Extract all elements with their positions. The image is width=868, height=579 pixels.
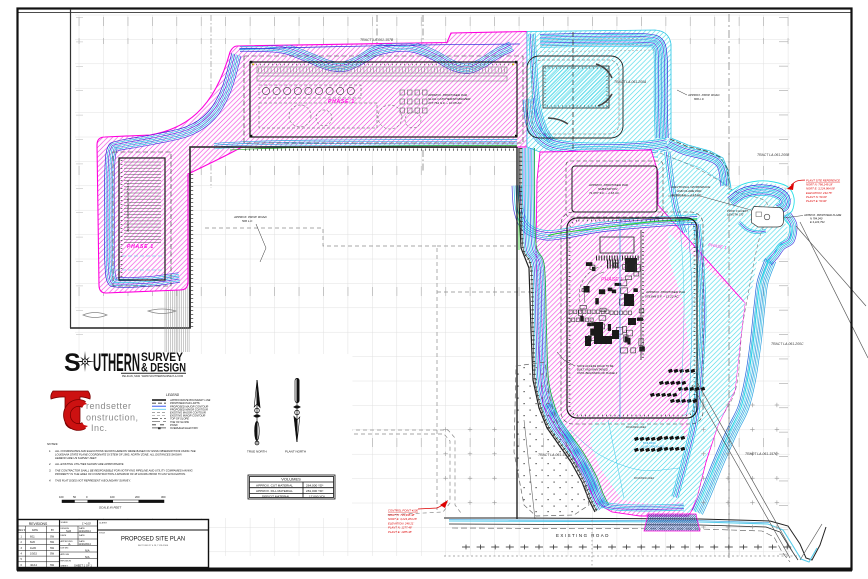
svg-text:S: S: [64, 349, 81, 377]
svg-text:11/20/2014: 11/20/2014: [79, 543, 92, 546]
svg-text:TRUE NORTH: TRUE NORTH: [247, 450, 267, 454]
svg-text:TRACT LA-061-200C: TRACT LA-061-200C: [771, 342, 804, 346]
svg-text:4.: 4.: [49, 478, 51, 482]
svg-text:3.: 3.: [49, 469, 51, 473]
svg-text:HEREON ARE US SURVEY FEET.: HEREON ARE US SURVEY FEET.: [55, 456, 97, 460]
svg-text:PLANT E: 1385.48': PLANT E: 1385.48': [388, 530, 412, 534]
svg-text:1.: 1.: [49, 449, 51, 453]
svg-text:575,648 S.F. ~ 13.22 AC.: 575,648 S.F. ~ 13.22 AC.: [645, 295, 680, 299]
svg-text:437,761 S.F. ~ 10.05 AC.: 437,761 S.F. ~ 10.05 AC.: [428, 101, 463, 105]
svg-text:& DESIGN: & DESIGN: [141, 363, 186, 375]
svg-text:100: 100: [59, 495, 64, 499]
svg-text:PROPOSED SITE PLAN: PROPOSED SITE PLAN: [121, 536, 185, 543]
svg-text:SECTIONS 27 & 28, T12S-R10E: SECTIONS 27 & 28, T12S-R10E: [138, 545, 169, 547]
svg-text:REV #: REV #: [19, 530, 26, 532]
svg-text:BUILT AND MAINTAINED: BUILT AND MAINTAINED: [577, 368, 608, 372]
svg-text:REVISIONS: REVISIONS: [29, 522, 48, 526]
svg-text:1"=100': 1"=100': [82, 522, 92, 526]
svg-text:SW: SW: [50, 535, 55, 538]
svg-text:6/11: 6/11: [30, 535, 35, 538]
svg-text:UNTIL BEGINNING OF PHASE 2: UNTIL BEGINNING OF PHASE 2: [577, 371, 618, 375]
svg-text:PHASE 1: PHASE 1: [328, 99, 355, 105]
svg-text:BUILDING: BUILDING: [643, 441, 656, 445]
svg-text:VOLUMES: VOLUMES: [281, 477, 301, 482]
svg-text:PLANT E: 50.00': PLANT E: 50.00': [806, 199, 827, 203]
svg-text:281,000 YD³: 281,000 YD³: [306, 489, 323, 493]
svg-text:TRACT LA-061-200B: TRACT LA-061-200B: [757, 153, 790, 157]
svg-text:N/A: N/A: [85, 548, 90, 552]
svg-text:200: 200: [135, 495, 140, 499]
svg-text:DATE: DATE: [61, 534, 67, 537]
svg-text:onstruction,: onstruction,: [86, 413, 139, 423]
svg-text:DW MG: DW MG: [61, 547, 69, 549]
svg-text:LENGTH 170': LENGTH 170': [727, 213, 744, 217]
svg-text:DATE: DATE: [32, 529, 38, 532]
svg-text:TRACT LA-061-200A: TRACT LA-061-200A: [614, 80, 647, 84]
svg-text:THE CONTRACTOR SHALL BE RESPON: THE CONTRACTOR SHALL BE RESPONSIBLE FOR …: [55, 469, 193, 473]
svg-text:EXISTING ROAD: EXISTING ROAD: [556, 533, 610, 538]
svg-text:300: 300: [161, 495, 166, 499]
svg-text:N/A: N/A: [85, 555, 90, 559]
svg-text:ALL COORDINATES AND ELEVATIONS: ALL COORDINATES AND ELEVATIONS SHOWN HER…: [54, 449, 196, 453]
svg-text:OVERHEAD ELECTRIC: OVERHEAD ELECTRIC: [170, 426, 198, 430]
svg-text:/21/14: /21/14: [30, 564, 38, 567]
svg-text:71,057 S.F. ~ 1.63 AC.: 71,057 S.F. ~ 1.63 AC.: [589, 191, 620, 195]
svg-text:NOTE ACCESS ROAD TO BE: NOTE ACCESS ROAD TO BE: [577, 364, 614, 368]
svg-text:TITLE: TITLE: [99, 533, 105, 535]
svg-text:1/5/15: 1/5/15: [30, 553, 38, 556]
svg-text:17,000 YD³: 17,000 YD³: [309, 495, 325, 499]
svg-text:TRACT LA-061-157B: TRACT LA-061-157B: [360, 38, 394, 42]
svg-text:SHEET 1 OF 1: SHEET 1 OF 1: [74, 564, 92, 568]
svg-text:2.: 2.: [48, 462, 51, 466]
svg-text:11/20: 11/20: [30, 547, 37, 550]
svg-text:APPROX. PROPOSED PAD: APPROX. PROPOSED PAD: [645, 290, 686, 294]
svg-text:REVISION: REVISION: [61, 560, 72, 562]
svg-text:ALL EXISTING UTILITIES SHOWN A: ALL EXISTING UTILITIES SHOWN ARE APPROXI…: [54, 462, 124, 466]
svg-text:THIS PLAT DOES NOT REPRESENT A: THIS PLAT DOES NOT REPRESENT A BOUNDARY …: [55, 478, 131, 482]
svg-text:TRACT LA-061-157A: TRACT LA-061-157A: [538, 453, 571, 457]
svg-text:PROP. CULVERT: PROP. CULVERT: [727, 209, 748, 213]
svg-text:100: 100: [110, 495, 115, 499]
svg-text:LEGEND: LEGEND: [166, 393, 180, 397]
svg-text:BY: BY: [51, 530, 55, 532]
svg-text:DEFICIT MATERIAL: DEFICIT MATERIAL: [262, 495, 290, 499]
svg-text:SLAB GRADE=250: SLAB GRADE=250: [641, 445, 665, 449]
svg-text:Inc.: Inc.: [91, 423, 108, 433]
svg-text:ROUNDED AREA: ROUNDED AREA: [626, 426, 646, 429]
svg-text:PROPERTY IN THE AREA OF CONSTR: PROPERTY IN THE AREA OF CONSTRUCTION A M…: [55, 472, 186, 476]
svg-text:PLANT NORTH: PLANT NORTH: [285, 450, 306, 454]
svg-text:N 784,040: N 784,040: [810, 217, 823, 221]
svg-text:rendsetter: rendsetter: [86, 401, 132, 411]
svg-text:NOTES:: NOTES:: [47, 442, 58, 446]
svg-text:APPROX. CUT MATERIAL: APPROX. CUT MATERIAL: [256, 483, 293, 487]
svg-text:APD MG: APD MG: [61, 553, 70, 556]
svg-text:SLR: SLR: [66, 529, 71, 533]
svg-text:SW: SW: [50, 547, 55, 550]
svg-text:94,590 S.F. ~ 2.17 AC.: 94,590 S.F. ~ 2.17 AC.: [671, 193, 702, 197]
svg-text:CLIENT: CLIENT: [99, 523, 107, 525]
svg-text:LOUISIANA STATE PLANE COORDINA: LOUISIANA STATE PLANE COORDINATE SYSTEM …: [55, 452, 182, 456]
svg-text:SCALE IN FEET: SCALE IN FEET: [99, 506, 122, 510]
svg-text:APPROX. FILL MATERIAL: APPROX. FILL MATERIAL: [256, 489, 293, 493]
svg-text:APPROX. PROPOSED PAD 437,761 S: APPROX. PROPOSED PAD 437,761 S.F.: [126, 180, 130, 233]
svg-text:ROUNDED AREA: ROUNDED AREA: [634, 477, 654, 480]
svg-text:TRACT LA-061-157C: TRACT LA-061-157C: [745, 452, 778, 456]
svg-text:PELICAN, SIGN WWW.SOUTHERNSUR: PELICAN, SIGN WWW.SOUTHERNSURVEYLA.COM: [122, 375, 183, 378]
svg-text:SW: SW: [50, 553, 55, 556]
svg-text:APPROVED: APPROVED: [61, 540, 74, 543]
svg-text:500 L.F.: 500 L.F.: [242, 219, 253, 223]
svg-text:SW: SW: [50, 541, 55, 544]
svg-text:JL: JL: [68, 542, 71, 546]
svg-text:SHEET: SHEET: [61, 566, 69, 568]
svg-text:6/26: 6/26: [30, 541, 35, 544]
svg-text:50: 50: [73, 495, 76, 499]
svg-text:APPROX. PROPOSED FLARE: APPROX. PROPOSED FLARE: [803, 213, 842, 217]
svg-text:SCALE: SCALE: [61, 521, 69, 524]
svg-text:11/20/2014: 11/20/2014: [79, 530, 92, 533]
svg-text:800 L.F.: 800 L.F.: [694, 97, 704, 101]
svg-text:264,000 YD³: 264,000 YD³: [306, 483, 323, 487]
svg-text:E 3,224,794: E 3,224,794: [810, 220, 825, 224]
svg-text:DATE: DATE: [79, 534, 85, 537]
svg-text:PHASE 1: PHASE 1: [127, 244, 154, 250]
svg-text:SW: SW: [50, 564, 55, 567]
